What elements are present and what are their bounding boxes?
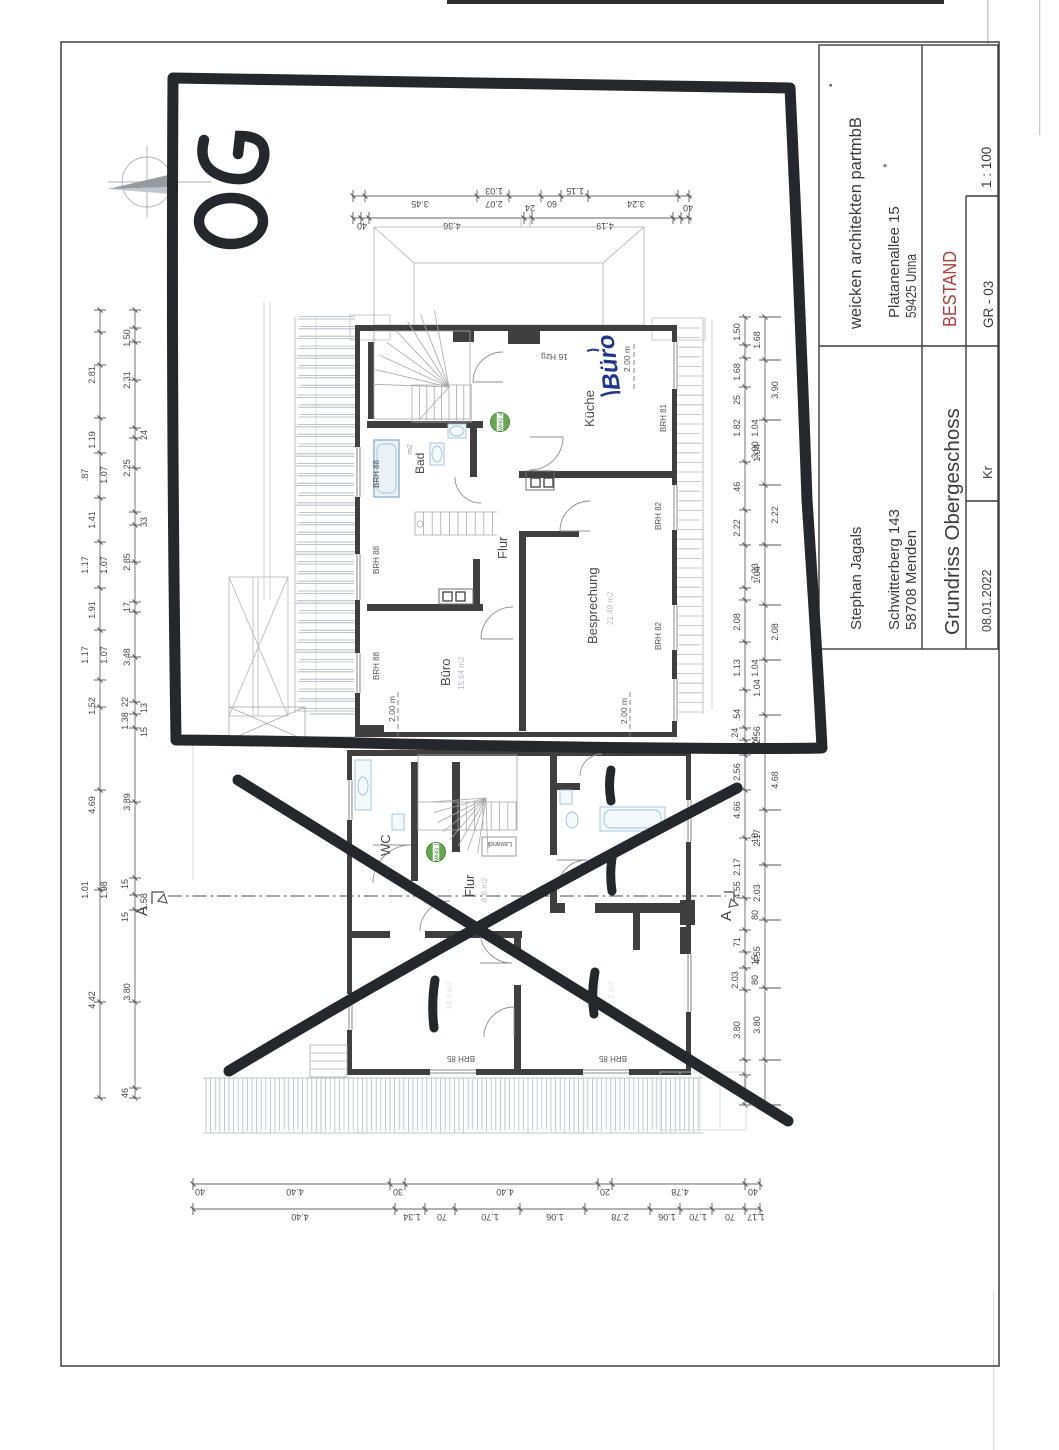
svg-text:08.01.2022: 08.01.2022 bbox=[980, 569, 994, 632]
svg-text:40: 40 bbox=[195, 1187, 205, 1197]
svg-text:2.81: 2.81 bbox=[87, 366, 97, 384]
svg-text:46: 46 bbox=[120, 1088, 130, 1098]
svg-text:2.56: 2.56 bbox=[752, 726, 762, 744]
svg-text:25: 25 bbox=[732, 395, 742, 405]
svg-text:1.04: 1.04 bbox=[752, 444, 762, 462]
svg-text:2.85: 2.85 bbox=[122, 553, 132, 571]
svg-text:1.98: 1.98 bbox=[99, 881, 109, 899]
svg-text:1.91: 1.91 bbox=[87, 601, 97, 619]
svg-text:4.68: 4.68 bbox=[770, 771, 780, 789]
svg-text:15: 15 bbox=[120, 879, 130, 889]
svg-text:40: 40 bbox=[683, 203, 693, 213]
svg-text:.87: .87 bbox=[80, 469, 90, 482]
svg-text:1.52: 1.52 bbox=[87, 697, 97, 715]
svg-text:1.04: 1.04 bbox=[750, 659, 760, 677]
svg-text:3.80: 3.80 bbox=[752, 1016, 762, 1034]
svg-text:3.90: 3.90 bbox=[770, 381, 780, 399]
svg-text:33: 33 bbox=[139, 517, 149, 527]
svg-text:58708 Menden: 58708 Menden bbox=[903, 530, 920, 630]
svg-text:1.17: 1.17 bbox=[747, 1212, 765, 1222]
svg-text:1.50: 1.50 bbox=[122, 329, 132, 347]
svg-text:Lavandi: Lavandi bbox=[487, 840, 512, 847]
svg-text:1.41: 1.41 bbox=[87, 511, 97, 529]
svg-text:.24: .24 bbox=[730, 728, 740, 741]
svg-text:2.00 m: 2.00 m bbox=[622, 346, 632, 372]
svg-text:2.25: 2.25 bbox=[122, 459, 132, 477]
svg-text:1.70: 1.70 bbox=[689, 1212, 707, 1222]
svg-text:3.80: 3.80 bbox=[122, 983, 132, 1001]
svg-text:71: 71 bbox=[732, 937, 742, 947]
svg-text:13: 13 bbox=[139, 703, 149, 713]
svg-text:WC: WC bbox=[378, 834, 393, 856]
svg-text:.46: .46 bbox=[732, 482, 742, 495]
svg-text:2.03: 2.03 bbox=[752, 884, 762, 902]
svg-text:2.56: 2.56 bbox=[732, 763, 742, 781]
svg-text:Stephan Jagals: Stephan Jagals bbox=[848, 527, 865, 630]
svg-text:BESTAND: BESTAND bbox=[940, 251, 960, 327]
svg-text:70: 70 bbox=[725, 1212, 735, 1222]
svg-text:1.13: 1.13 bbox=[732, 659, 742, 677]
svg-text:4.19: 4.19 bbox=[596, 221, 614, 231]
svg-text:21.49 m2: 21.49 m2 bbox=[606, 591, 615, 625]
svg-text:17: 17 bbox=[122, 602, 132, 612]
svg-text:WHG 1: WHG 1 bbox=[435, 843, 441, 861]
svg-text:BRH 88: BRH 88 bbox=[372, 459, 381, 488]
svg-text:15: 15 bbox=[120, 912, 130, 922]
svg-text:BRH 85: BRH 85 bbox=[446, 1054, 475, 1063]
svg-text:4.36: 4.36 bbox=[443, 221, 461, 231]
svg-text:59425 Unna: 59425 Unna bbox=[903, 253, 920, 318]
svg-text:Kr: Kr bbox=[980, 465, 995, 479]
svg-text:4.40: 4.40 bbox=[496, 1187, 514, 1197]
svg-text:4.66: 4.66 bbox=[732, 801, 742, 819]
svg-text:4.40: 4.40 bbox=[291, 1212, 309, 1222]
svg-text:1.68: 1.68 bbox=[752, 331, 762, 349]
svg-text:4.40: 4.40 bbox=[286, 1187, 304, 1197]
svg-text:m2: m2 bbox=[407, 444, 414, 454]
svg-text:30: 30 bbox=[393, 1187, 403, 1197]
svg-text:A: A bbox=[134, 906, 151, 916]
svg-text:14.9 m2: 14.9 m2 bbox=[445, 981, 454, 1010]
svg-text:1.50: 1.50 bbox=[732, 323, 742, 341]
svg-text:BRH 81: BRH 81 bbox=[659, 403, 668, 432]
svg-text:WHG 4: WHG 4 bbox=[499, 413, 505, 431]
svg-text:2.22: 2.22 bbox=[770, 506, 780, 524]
svg-text:✦: ✦ bbox=[881, 162, 890, 169]
svg-text:80: 80 bbox=[750, 975, 760, 985]
svg-text:BRH 82: BRH 82 bbox=[654, 621, 663, 650]
svg-text:BRH 82: BRH 82 bbox=[654, 501, 663, 530]
svg-text:1.04: 1.04 bbox=[752, 679, 762, 697]
svg-text:A: A bbox=[718, 911, 735, 921]
svg-text:40: 40 bbox=[357, 221, 367, 231]
svg-text:1.70: 1.70 bbox=[481, 1212, 499, 1222]
svg-text:15: 15 bbox=[139, 727, 149, 737]
svg-text:Flur: Flur bbox=[495, 536, 510, 559]
svg-text:2.22: 2.22 bbox=[732, 519, 742, 537]
svg-text:20: 20 bbox=[600, 1187, 610, 1197]
svg-text:4.42: 4.42 bbox=[87, 991, 97, 1009]
svg-text:2.07: 2.07 bbox=[485, 199, 503, 209]
svg-text:3.80: 3.80 bbox=[732, 1021, 742, 1039]
svg-text:1.38: 1.38 bbox=[120, 712, 130, 730]
svg-text:1.07: 1.07 bbox=[99, 556, 109, 574]
svg-text:.54: .54 bbox=[732, 709, 742, 722]
svg-text:4.78: 4.78 bbox=[671, 1187, 689, 1197]
svg-text:Büro: Büro bbox=[438, 659, 453, 686]
svg-text:3.45: 3.45 bbox=[411, 199, 429, 209]
svg-text:8.6 m2: 8.6 m2 bbox=[480, 877, 489, 902]
svg-text:80: 80 bbox=[750, 910, 760, 920]
svg-text:2.78: 2.78 bbox=[611, 1212, 629, 1222]
svg-text:BRH 88: BRH 88 bbox=[372, 651, 381, 680]
svg-text:2.31: 2.31 bbox=[122, 371, 132, 389]
svg-text:2.17: 2.17 bbox=[752, 829, 762, 847]
svg-text:1.01: 1.01 bbox=[80, 881, 90, 899]
svg-text:24: 24 bbox=[525, 203, 535, 213]
svg-text:24: 24 bbox=[139, 430, 149, 440]
svg-text:3.48: 3.48 bbox=[122, 648, 132, 666]
svg-text:Grundriss Obergeschoss: Grundriss Obergeschoss bbox=[941, 408, 964, 635]
svg-text:1.17: 1.17 bbox=[80, 646, 90, 664]
svg-text:70: 70 bbox=[437, 1212, 447, 1222]
svg-text:Küche: Küche bbox=[582, 390, 597, 427]
svg-text:BRH 88: BRH 88 bbox=[372, 545, 381, 574]
svg-text:16 Hzg: 16 Hzg bbox=[541, 352, 568, 362]
svg-text:•: • bbox=[826, 83, 837, 87]
svg-text:1.17: 1.17 bbox=[80, 556, 90, 574]
svg-text:2.17: 2.17 bbox=[732, 858, 742, 876]
svg-text:2.08: 2.08 bbox=[770, 623, 780, 641]
svg-text:1.06: 1.06 bbox=[546, 1212, 564, 1222]
svg-text:1.04: 1.04 bbox=[750, 419, 760, 437]
svg-text:1.15: 1.15 bbox=[566, 186, 584, 196]
svg-text:15.64 m2: 15.64 m2 bbox=[457, 656, 466, 690]
svg-text:4.55: 4.55 bbox=[752, 946, 762, 964]
svg-text:3.24: 3.24 bbox=[627, 199, 645, 209]
svg-text:1.19: 1.19 bbox=[87, 431, 97, 449]
svg-text:1.68: 1.68 bbox=[732, 363, 742, 381]
svg-text:GR - 03: GR - 03 bbox=[981, 281, 996, 328]
svg-text:Bad: Bad bbox=[413, 453, 427, 474]
svg-text:1.04: 1.04 bbox=[752, 566, 762, 584]
svg-text:2.00 m: 2.00 m bbox=[387, 696, 397, 722]
svg-text:Flur: Flur bbox=[462, 874, 477, 897]
svg-text:1.06: 1.06 bbox=[658, 1212, 676, 1222]
svg-text:2.00 m: 2.00 m bbox=[619, 698, 629, 724]
svg-text:2.08: 2.08 bbox=[732, 613, 742, 631]
svg-text:3.89: 3.89 bbox=[122, 793, 132, 811]
svg-text:weicken architekten partmbB: weicken architekten partmbB bbox=[847, 117, 865, 330]
svg-text:1.07: 1.07 bbox=[99, 646, 109, 664]
svg-text:40: 40 bbox=[748, 1187, 758, 1197]
svg-text:BRH 85: BRH 85 bbox=[598, 1054, 627, 1063]
svg-text:Schwitterberg 143: Schwitterberg 143 bbox=[886, 509, 903, 630]
svg-text:60: 60 bbox=[547, 199, 557, 209]
svg-text:Platanenallee 15: Platanenallee 15 bbox=[886, 206, 903, 318]
svg-text:1.03: 1.03 bbox=[485, 186, 503, 196]
svg-text:22: 22 bbox=[120, 697, 130, 707]
svg-text:1.07: 1.07 bbox=[99, 466, 109, 484]
svg-text:1 : 100: 1 : 100 bbox=[979, 147, 994, 188]
svg-text:Besprechung: Besprechung bbox=[585, 567, 600, 644]
svg-text:4.69: 4.69 bbox=[87, 796, 97, 814]
svg-text:1.82: 1.82 bbox=[732, 419, 742, 437]
svg-text:1.34: 1.34 bbox=[403, 1212, 421, 1222]
svg-text:2.03: 2.03 bbox=[730, 971, 740, 989]
